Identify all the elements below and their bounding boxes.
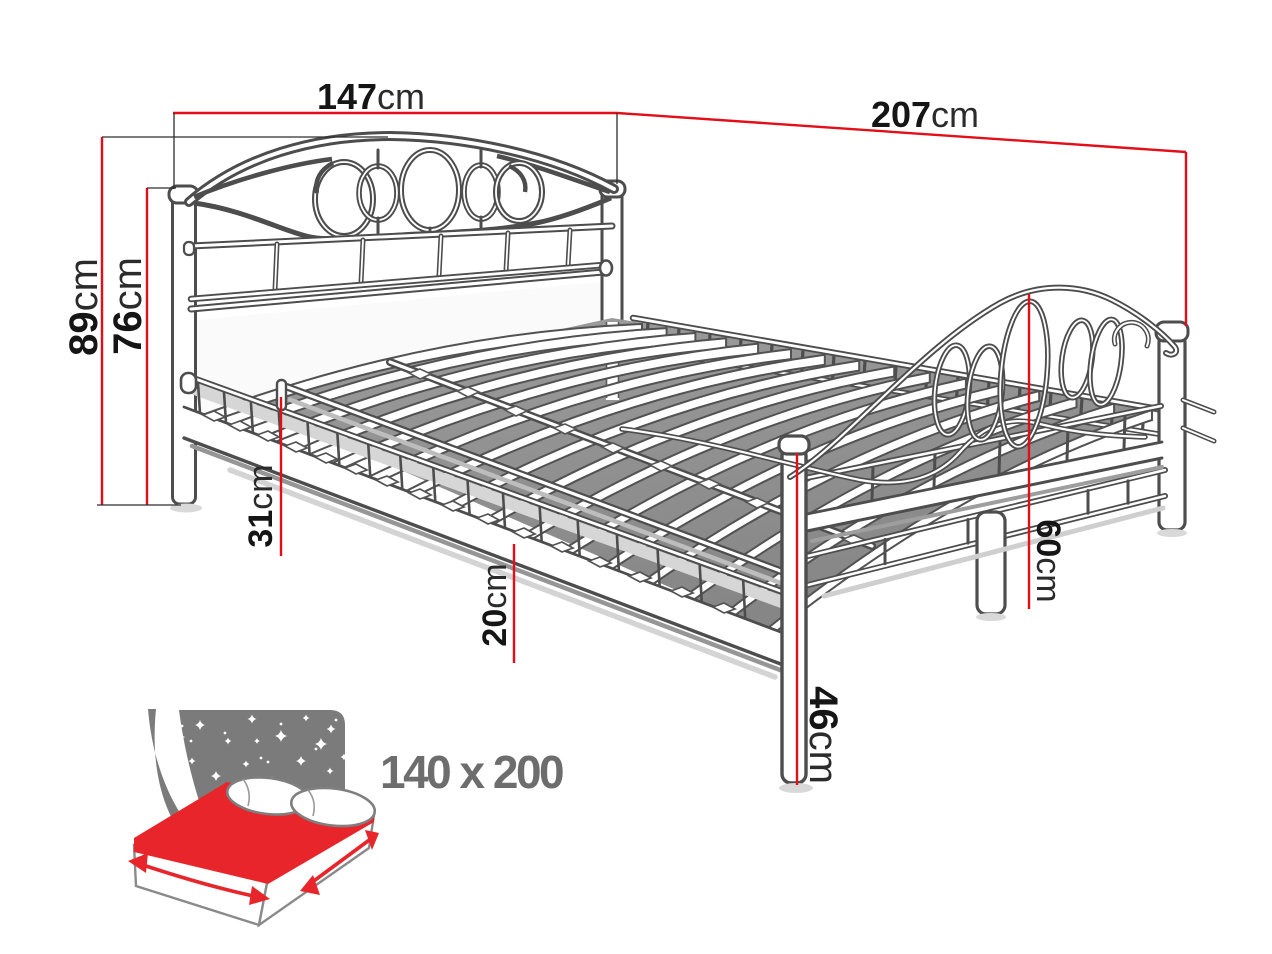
svg-text:60cm: 60cm [1029, 519, 1067, 602]
svg-text:31cm: 31cm [242, 464, 280, 547]
svg-text:147cm: 147cm [317, 76, 425, 117]
svg-text:140 x 200: 140 x 200 [380, 746, 563, 798]
svg-text:46cm: 46cm [801, 686, 845, 784]
svg-text:20cm: 20cm [476, 563, 514, 646]
svg-text:89cm: 89cm [62, 258, 106, 356]
svg-text:76cm: 76cm [106, 257, 150, 355]
svg-text:207cm: 207cm [871, 94, 979, 135]
